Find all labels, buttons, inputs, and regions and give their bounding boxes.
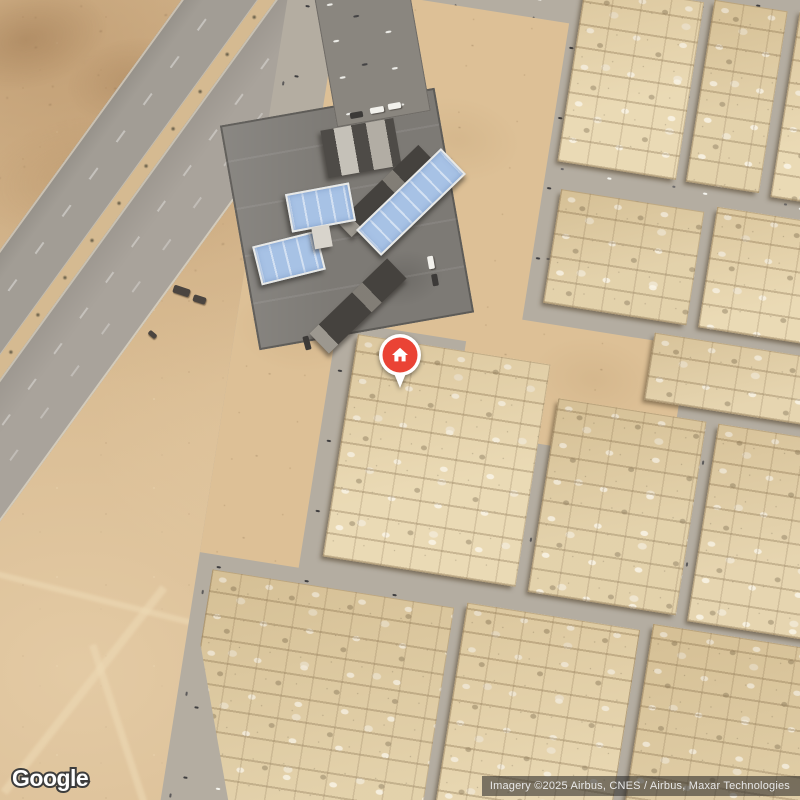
debris-speck — [75, 387, 87, 397]
city-block — [557, 0, 704, 180]
vehicle-speck — [172, 285, 191, 298]
attribution-text: Imagery ©2025 Airbus, CNES / Airbus, Max… — [490, 780, 790, 792]
vehicle-speck — [192, 294, 207, 305]
google-logo[interactable]: Google — [12, 765, 88, 792]
attribution-bar: Imagery ©2025 Airbus, CNES / Airbus, Max… — [482, 776, 800, 796]
city-district — [144, 0, 800, 800]
desert-track — [0, 570, 217, 631]
city-block — [698, 207, 800, 359]
city-block — [687, 424, 800, 648]
city-block — [543, 189, 704, 325]
location-marker[interactable] — [377, 329, 423, 391]
map-canvas[interactable]: Google Imagery ©2025 Airbus, CNES / Airb… — [0, 0, 800, 800]
debris-speck — [147, 330, 157, 340]
city-block — [528, 398, 707, 615]
city-block — [158, 569, 454, 800]
city-block — [686, 0, 788, 193]
desert-track — [1, 585, 167, 795]
debris-speck — [58, 398, 66, 403]
desert-track — [89, 644, 157, 800]
small-structure — [311, 225, 333, 250]
city-block — [323, 334, 551, 587]
